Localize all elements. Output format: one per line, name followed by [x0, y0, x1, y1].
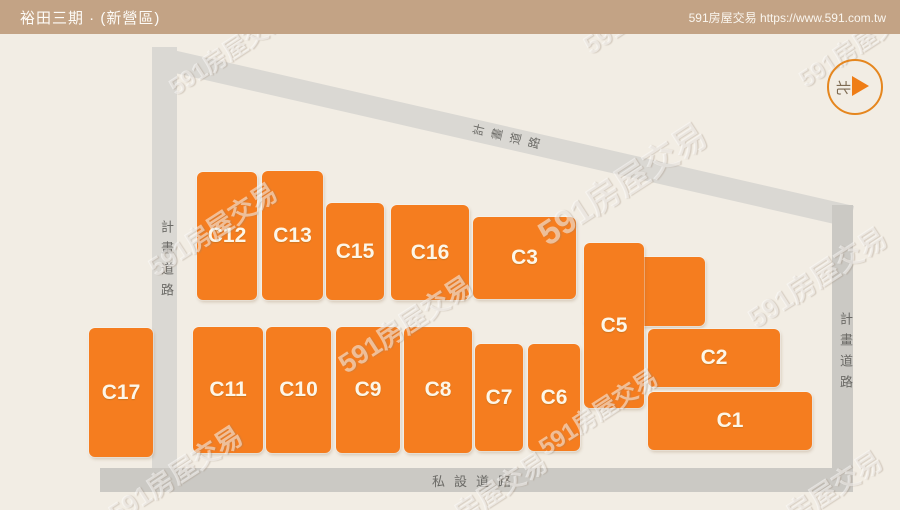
lot-block-C8[interactable]: C8: [404, 327, 472, 453]
lot-label: C12: [208, 224, 247, 248]
lot-label: C5: [601, 314, 628, 338]
lot-label: C7: [486, 386, 513, 410]
lot-block-C17[interactable]: C17: [89, 328, 153, 457]
header-bar: 裕田三期 · (新營區) 591房屋交易 https://www.591.com…: [0, 0, 900, 34]
lot-block-C1[interactable]: C1: [648, 392, 812, 450]
lot-label: C13: [273, 224, 312, 248]
lot-block-C12[interactable]: C12: [197, 172, 257, 300]
lot-label: C3: [511, 246, 538, 270]
lot-label: C2: [701, 346, 728, 370]
lot-label: C6: [541, 386, 568, 410]
lot-label: C9: [355, 378, 382, 402]
page-title: 裕田三期 · (新營區): [0, 7, 160, 28]
road-label-right: 計畫道路: [836, 312, 855, 396]
lot-block-C16[interactable]: C16: [391, 205, 469, 300]
lot-block-C13[interactable]: C13: [262, 171, 323, 300]
lot-block-C6[interactable]: C6: [528, 344, 580, 451]
lot-label: C11: [209, 378, 246, 402]
lot-label: C16: [411, 241, 450, 265]
north-arrow-icon: [852, 76, 869, 96]
road-label-left: 計畫道路: [157, 220, 176, 304]
lot-block-C10[interactable]: C10: [266, 327, 331, 453]
lot-block-C2[interactable]: C2: [648, 329, 780, 387]
watermark: 591房屋交易: [739, 217, 894, 337]
lot-block-C7[interactable]: C7: [475, 344, 523, 451]
lot-block-C9[interactable]: C9: [336, 327, 400, 453]
lot-label: C17: [102, 381, 141, 405]
lot-block-C11[interactable]: C11: [193, 327, 263, 453]
brand-url-text: 591房屋交易 https://www.591.com.tw: [689, 9, 900, 26]
lot-block-C5[interactable]: C5: [584, 243, 644, 408]
lot-label: C15: [336, 240, 375, 264]
lot-label: C8: [425, 378, 452, 402]
lot-label: C1: [717, 409, 744, 433]
lot-block-C3[interactable]: C3: [473, 217, 576, 299]
lot-block-C15[interactable]: C15: [326, 203, 384, 300]
lot-label: C10: [279, 378, 318, 402]
north-label: 北: [833, 80, 854, 95]
road-label-bottom: 私設道路: [432, 471, 520, 490]
compass: 北: [827, 59, 883, 115]
site-plan-map: 裕田三期 · (新營區) 591房屋交易 https://www.591.com…: [0, 0, 900, 510]
